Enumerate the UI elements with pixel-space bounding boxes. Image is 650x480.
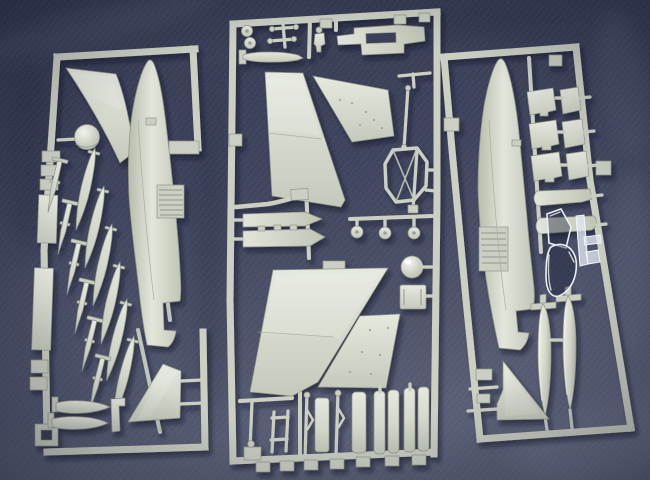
- photo-of-model-kit-sprues: [0, 0, 650, 480]
- photo-vignette: [0, 0, 650, 480]
- kit-sprues-photo: [0, 0, 650, 480]
